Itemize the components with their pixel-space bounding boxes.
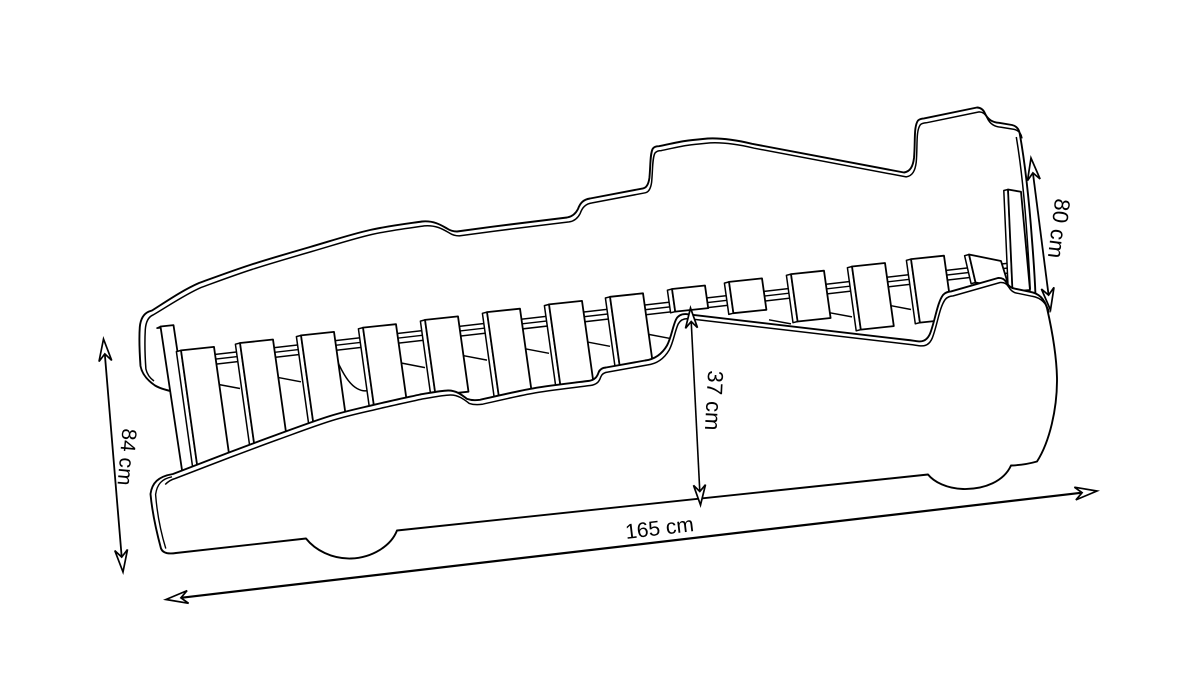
svg-text:37 cm: 37 cm xyxy=(700,370,728,431)
